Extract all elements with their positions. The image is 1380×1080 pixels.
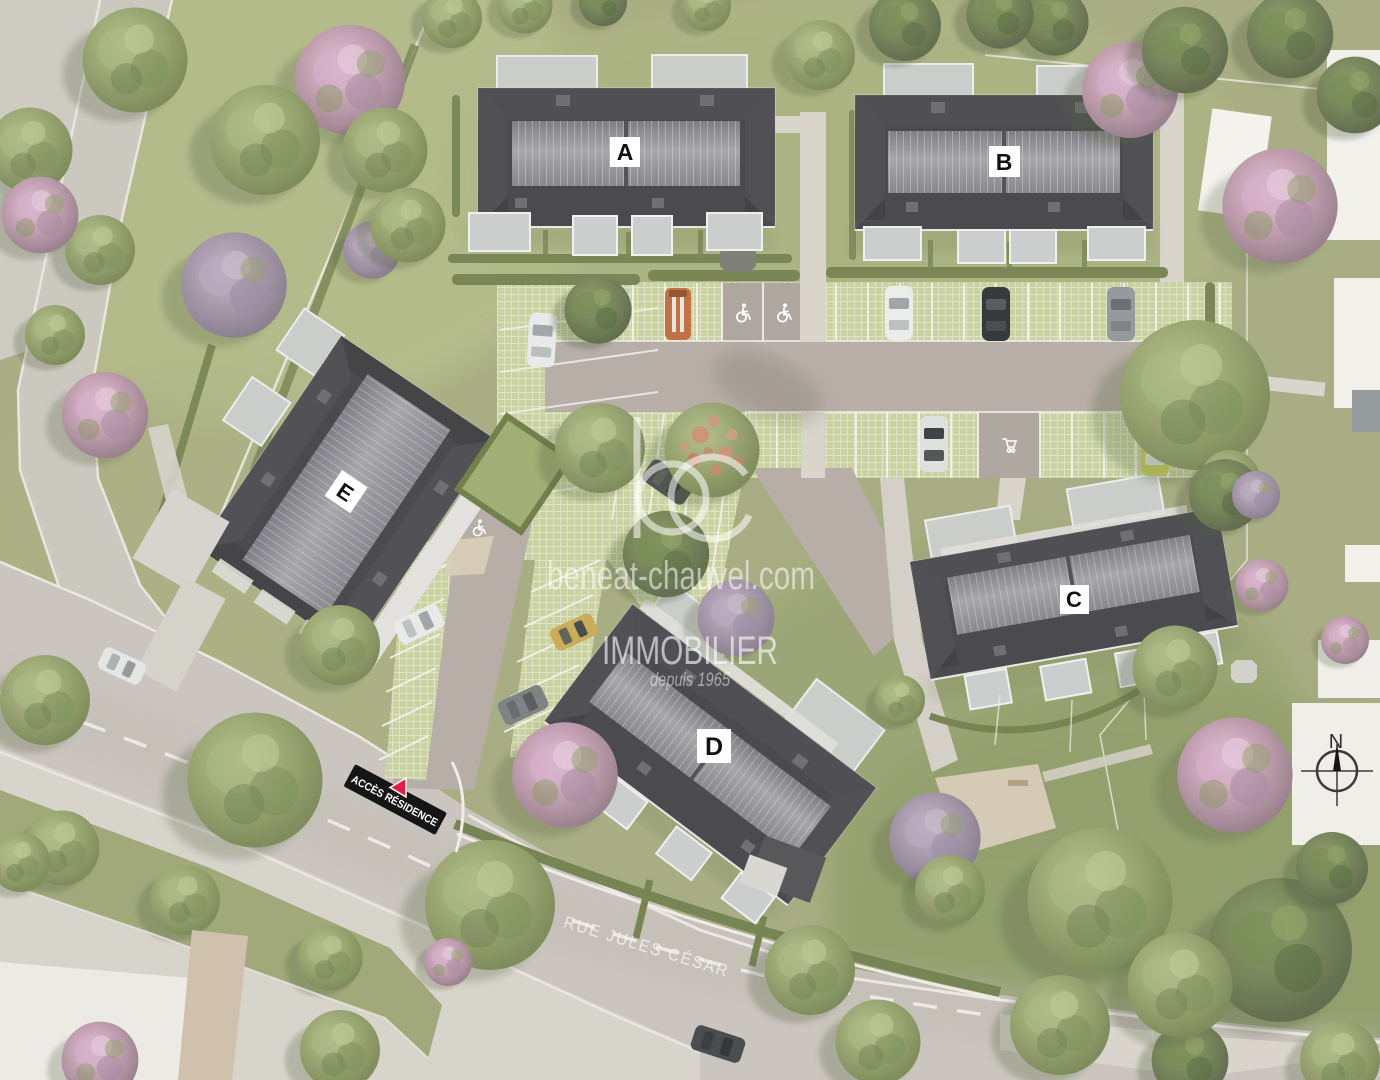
svg-text:N: N	[1329, 731, 1343, 753]
svg-text:C: C	[1066, 587, 1082, 612]
svg-text:A: A	[617, 139, 634, 165]
svg-text:IMMOBILIER: IMMOBILIER	[602, 629, 778, 673]
svg-text:beneat-chauvel.com: beneat-chauvel.com	[547, 554, 815, 598]
svg-text:B: B	[996, 149, 1013, 175]
svg-text:depuis 1965: depuis 1965	[650, 670, 730, 691]
svg-text:D: D	[705, 733, 723, 761]
